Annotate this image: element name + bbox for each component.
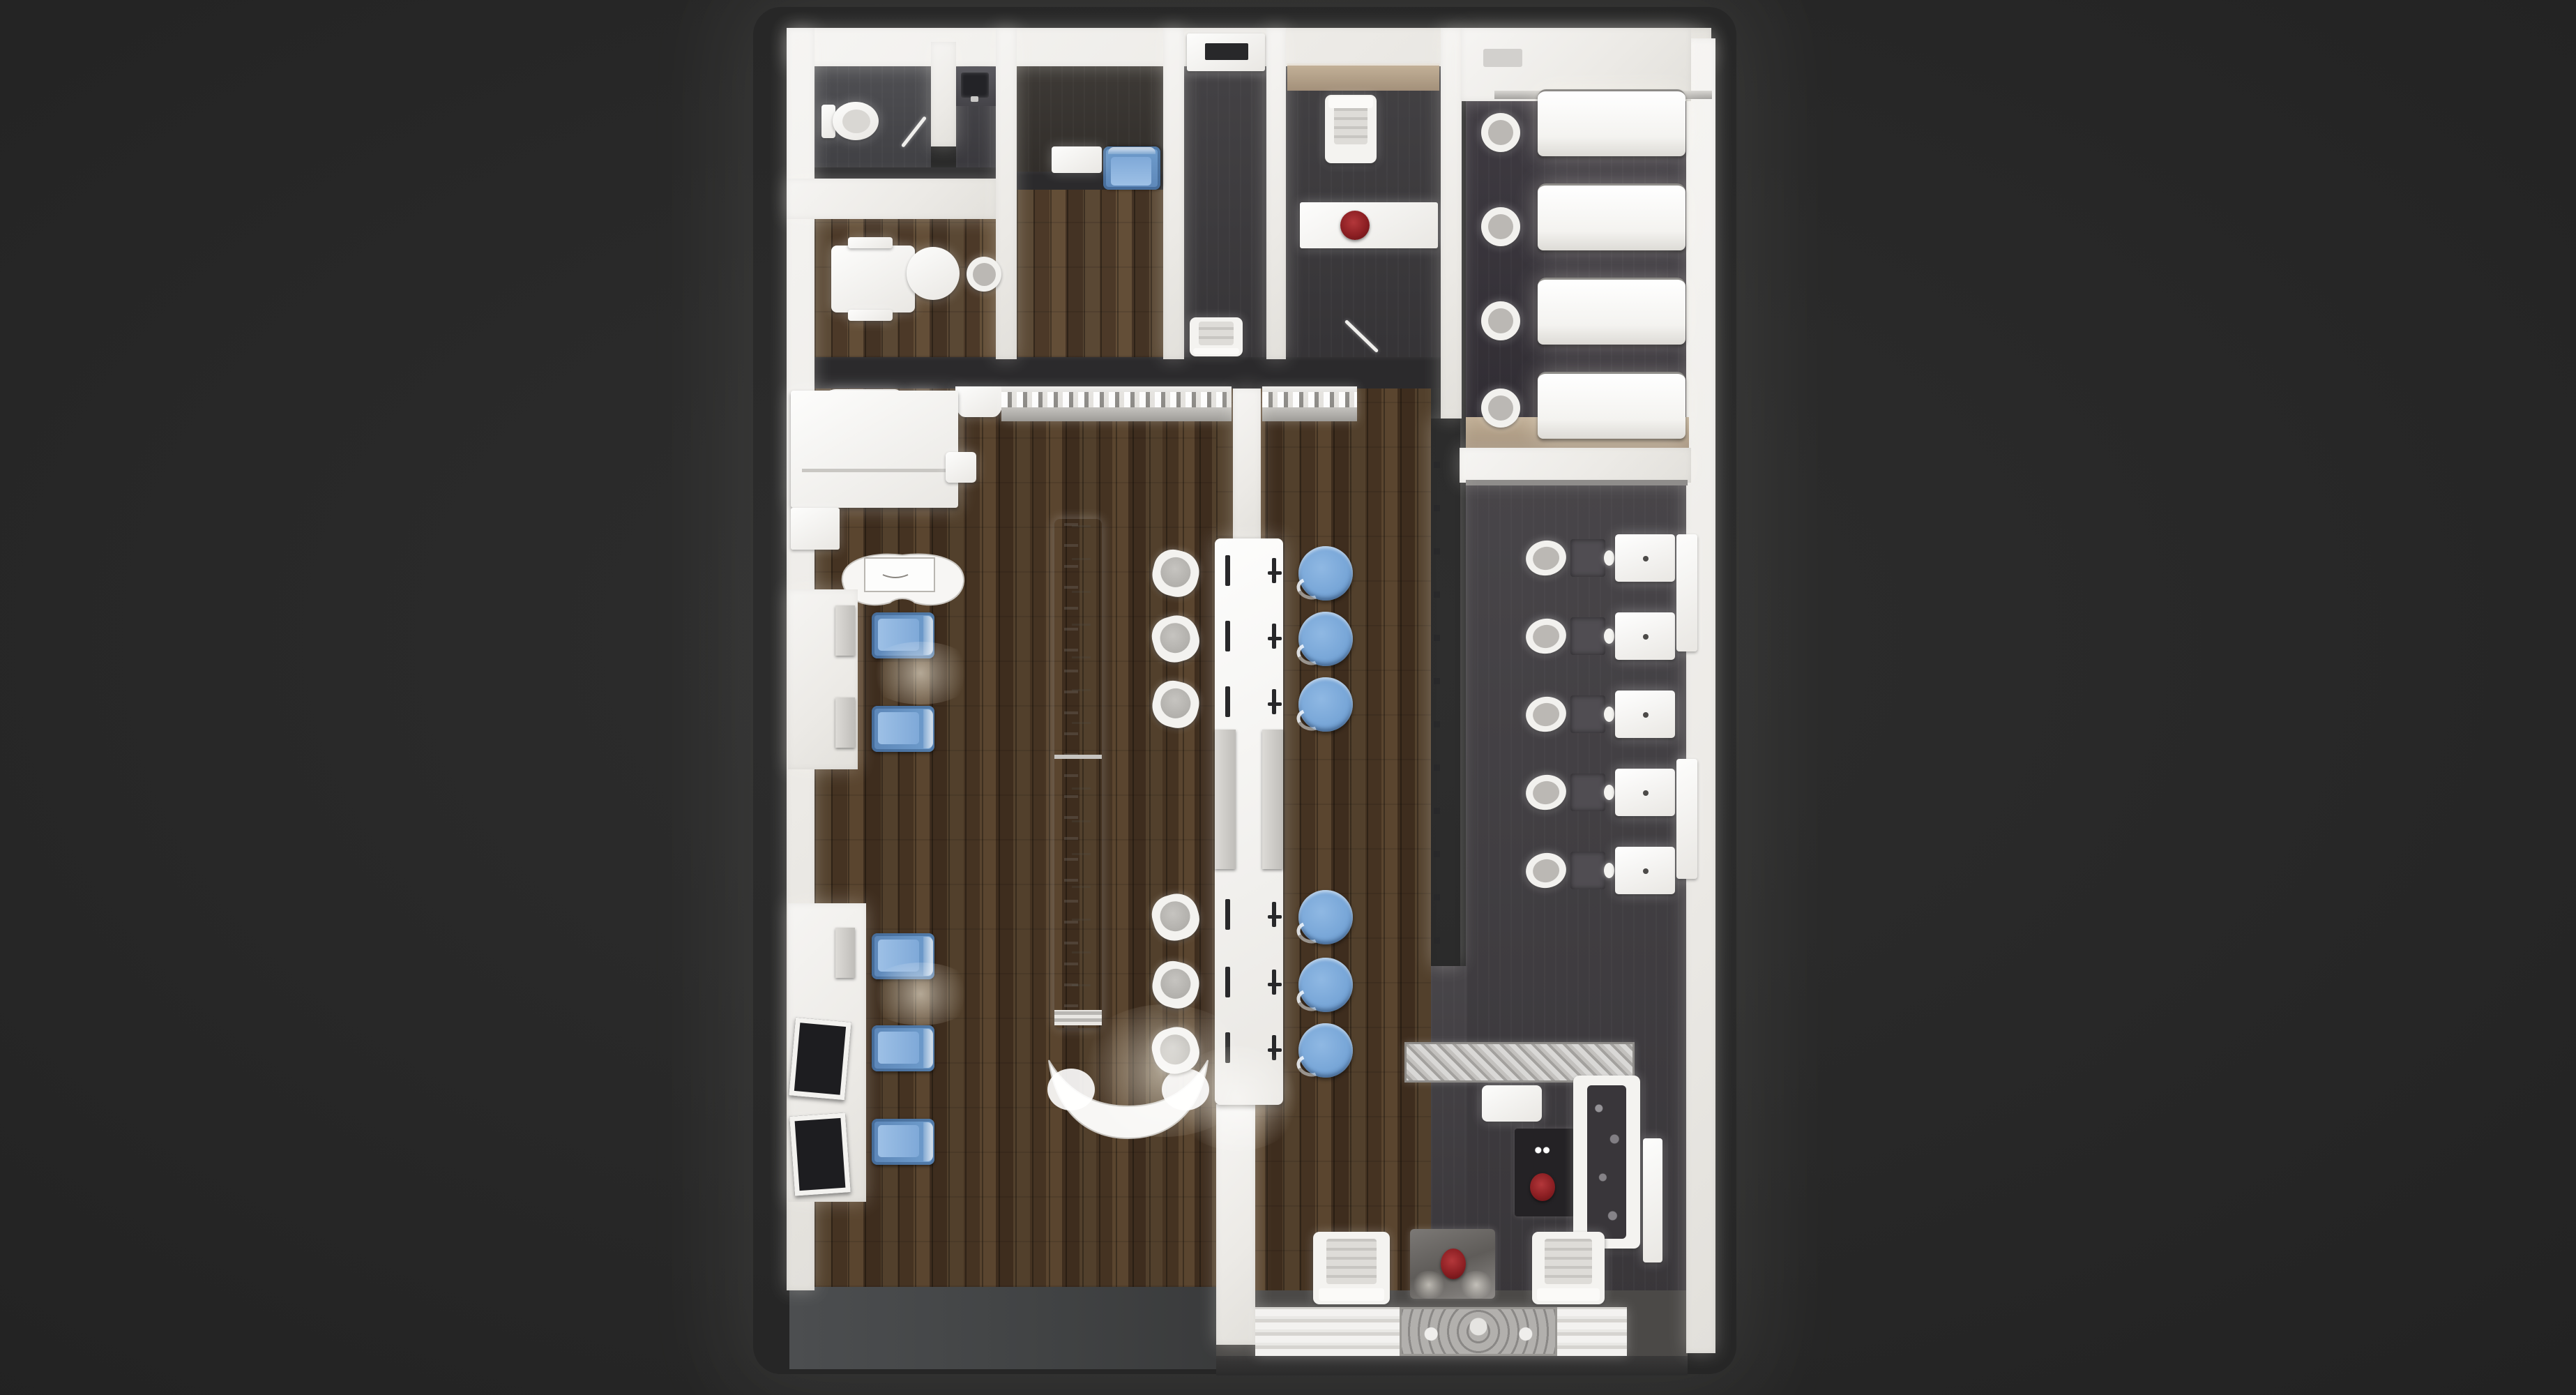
nail-bar-slot-right-tick [1268,983,1282,986]
pedicure-foot-bath [1570,774,1605,811]
styling-chair-back [923,616,933,654]
consult-chair-back [1328,96,1373,108]
lounge-armchair-1-back [1319,1288,1385,1301]
nail-bar-slot-right [1272,1035,1276,1060]
wall-consult-right [1441,28,1462,418]
chrome-table [1410,1229,1495,1299]
treatment-blue-chair [1103,146,1160,190]
facial-stool [967,257,1001,292]
lounge-armchair-2-seat [1545,1239,1593,1283]
nail-bar-chair-blue [1298,546,1353,601]
lounge-armchair-1 [1313,1232,1390,1304]
massage-bed [1538,89,1685,156]
styling-chair-back [923,709,933,748]
nail-bar-slot-right [1272,624,1276,649]
styling-chair-seat [878,1125,919,1157]
pedicure-station [1615,691,1675,738]
center-partition [1216,1104,1255,1345]
chrome-table-glow-2 [1459,1271,1494,1299]
pedicure-side-table-1 [1676,534,1697,651]
pedicure-foot-bath [1570,695,1605,733]
retail-display-joint [1054,755,1102,759]
pedicure-towel [1604,628,1614,644]
lounge-console [1643,1138,1662,1262]
styling-chair-blue [872,933,934,979]
nail-bar-chair-blue [1298,890,1353,944]
pedicure-station [1615,534,1675,582]
lounge-side-chair [1482,1085,1542,1122]
wall-massage-pedicure [1460,448,1691,483]
terrace-floor [789,1287,1216,1369]
nail-bar-slot-right [1272,558,1276,583]
facial-bed-body [831,246,915,312]
nail-bar-slot-left [1225,621,1230,651]
styling-chair-seat [878,1032,919,1064]
utility-sink [961,73,989,98]
pedicure-station [1615,612,1675,660]
chrome-table-glow-1 [1411,1271,1446,1299]
lounge-armchair-2-back [1537,1288,1599,1301]
lounge-sofa [1573,1076,1640,1249]
styling-chair-blue [872,706,934,752]
styling-chair-blue [872,612,934,658]
consult-chair-seat [1334,102,1368,144]
styling-chair-seat [878,619,919,651]
massage-stool [1481,301,1520,340]
office-chair-back [1193,348,1238,355]
styling-console [835,928,855,978]
styling-mirror-2 [789,1113,851,1196]
salon-pedicure-shelf [1431,418,1460,966]
wall-facial-top [787,179,996,219]
styling-chair-seat [878,940,919,972]
office-cabinet-slot [1205,43,1248,60]
wall-utility-treatment [996,28,1017,359]
coffee-table [1515,1129,1575,1216]
massage-bed [1538,372,1685,439]
consult-flower-pot [1340,211,1370,240]
entry-runner [1400,1307,1557,1356]
office-chair [1190,317,1243,356]
retail-display-counter [1054,519,1102,1028]
nail-bar-slot-right-tick [1268,702,1282,706]
nail-bar-slot-left [1225,967,1230,997]
pedicure-station [1615,769,1675,816]
wall-toilet-utility [931,42,956,146]
nail-bar-slot-left [1225,899,1230,930]
nail-bar-slot-left [1225,686,1230,717]
styling-chair-blue [872,1119,934,1165]
nail-bar-slot-right-tick [1268,637,1282,640]
lounge-armchair-2 [1532,1232,1605,1304]
nail-bar-slot-right-tick [1268,1048,1282,1052]
nail-bar-chair-blue [1298,612,1353,666]
alcove-floor [1017,190,1163,357]
pedicure-foot-bath [1570,539,1605,577]
office-room-floor [1184,42,1266,359]
consult-counter [1287,66,1439,91]
massage-stool [1481,207,1520,246]
nail-bar-slot-right [1272,970,1276,995]
prep-counter-right [1262,386,1357,421]
lounge-armchair-1-seat [1326,1239,1377,1283]
wall-band-under-toilet [787,167,996,179]
nail-bar-divider-right [1262,730,1283,869]
nail-bar-slot-left [1225,1032,1230,1063]
pedicure-towel [1604,863,1614,878]
outer-wall-right [1686,38,1715,1353]
styling-chair-back [923,937,933,975]
massage-stool [1481,389,1520,428]
styling-chair-back [923,1122,933,1161]
towel-shelf [955,386,1003,417]
nail-bar-divider-left [1215,730,1236,869]
massage-bed [1538,278,1685,345]
pedicure-foot-bath [1570,617,1605,655]
facial-bed-arm-top [848,237,893,248]
pedicure-side-table-2 [1676,759,1697,879]
reception-side-chair [946,452,976,483]
coffee-table-flower [1530,1173,1555,1201]
pedicure-towel [1604,550,1614,566]
nail-bar-slot-right [1272,689,1276,714]
styling-chair-back [923,1029,933,1067]
treatment-desk [1052,146,1102,173]
styling-chair-seat [878,712,919,744]
pedicure-towel [1604,707,1614,722]
reception-return [791,508,840,550]
floor-plan [0,0,2576,1395]
massage-stool [1481,113,1520,152]
pedicure-foot-bath [1570,852,1605,889]
treatment-blue-chair-back [1108,147,1156,154]
pedicure-station [1615,847,1675,894]
retail-display-base [1054,1010,1102,1025]
consult-chair [1325,95,1377,163]
nail-bar-chair-blue [1298,958,1353,1012]
pedicure-wall-edge [1466,480,1688,485]
nail-bar-chair-blue [1298,1023,1353,1078]
chrome-table-flower [1441,1249,1466,1279]
facial-bed-arm-bottom [848,310,893,321]
treatment-blue-chair-seat [1111,157,1151,186]
nail-bar-neck [1233,389,1261,542]
main-dark-wall-band [787,357,1449,389]
coffee-table-candles [1533,1145,1551,1155]
reception-desk-edge [802,469,958,472]
office-chair-seat [1199,322,1234,346]
nail-bar-slot-right [1272,902,1276,927]
nail-bar-slot-left [1225,555,1230,586]
wall-office-consult [1266,28,1286,359]
prep-counter-left [1001,386,1232,421]
pedicure-towel [1604,785,1614,800]
wall-treatment-office [1163,28,1184,359]
massage-room-sink [1483,49,1522,67]
massage-bed [1538,183,1685,250]
toilet-seat [842,110,870,133]
nail-bar-slot-right-tick [1268,571,1282,575]
styling-console [835,605,855,656]
nail-bar-chair-blue [1298,677,1353,732]
nail-bar-slot-right-tick [1268,915,1282,919]
utility-faucet [971,96,978,102]
styling-chair-blue [872,1025,934,1071]
facial-bed-headrest [907,247,960,300]
styling-mirror-1 [789,1018,851,1101]
entry-floor-edge [1216,1356,1688,1375]
reception-desk [791,391,958,508]
sofa-throw [1587,1085,1626,1239]
styling-console [835,697,855,748]
